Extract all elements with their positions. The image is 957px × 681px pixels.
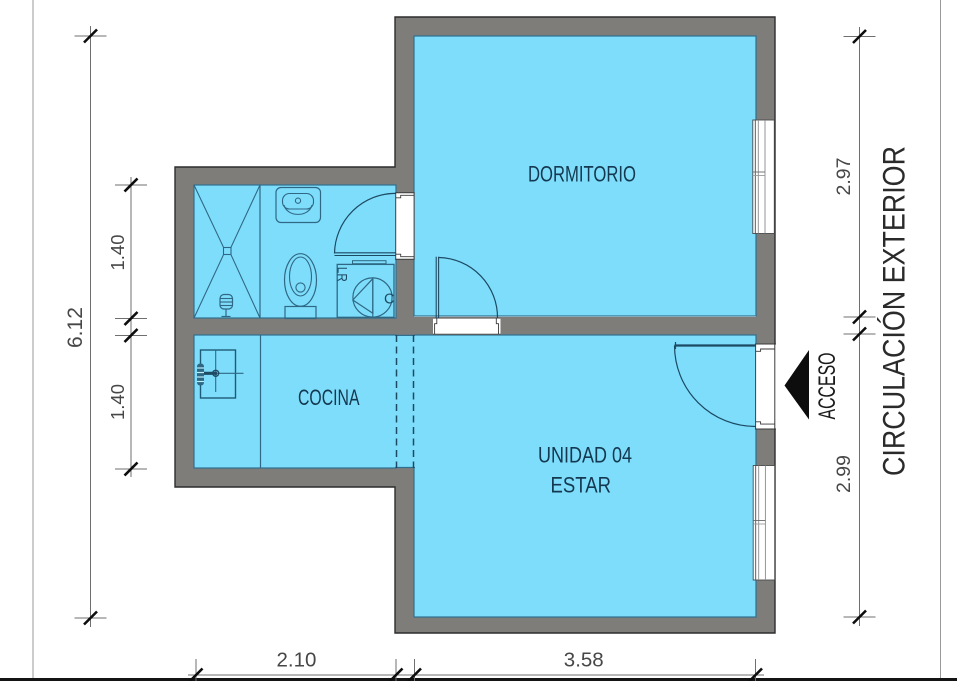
svg-text:ACCESO: ACCESO: [814, 353, 841, 420]
svg-text:2.10: 2.10: [277, 649, 317, 672]
svg-text:1.40: 1.40: [107, 234, 128, 270]
svg-text:UNIDAD 04: UNIDAD 04: [538, 442, 632, 467]
svg-text:ESTAR: ESTAR: [551, 473, 612, 498]
svg-text:C: C: [384, 292, 395, 308]
svg-text:2.97: 2.97: [833, 158, 855, 196]
svg-text:6.12: 6.12: [64, 307, 87, 348]
svg-text:1.40: 1.40: [107, 384, 128, 420]
svg-text:DORMITORIO: DORMITORIO: [528, 161, 636, 186]
svg-text:2.99: 2.99: [833, 455, 855, 493]
svg-text:COCINA: COCINA: [298, 385, 360, 410]
svg-text:CIRCULACIÓN EXTERIOR: CIRCULACIÓN EXTERIOR: [876, 146, 912, 476]
svg-text:3.58: 3.58: [564, 649, 604, 672]
svg-text:LR: LR: [334, 267, 350, 282]
